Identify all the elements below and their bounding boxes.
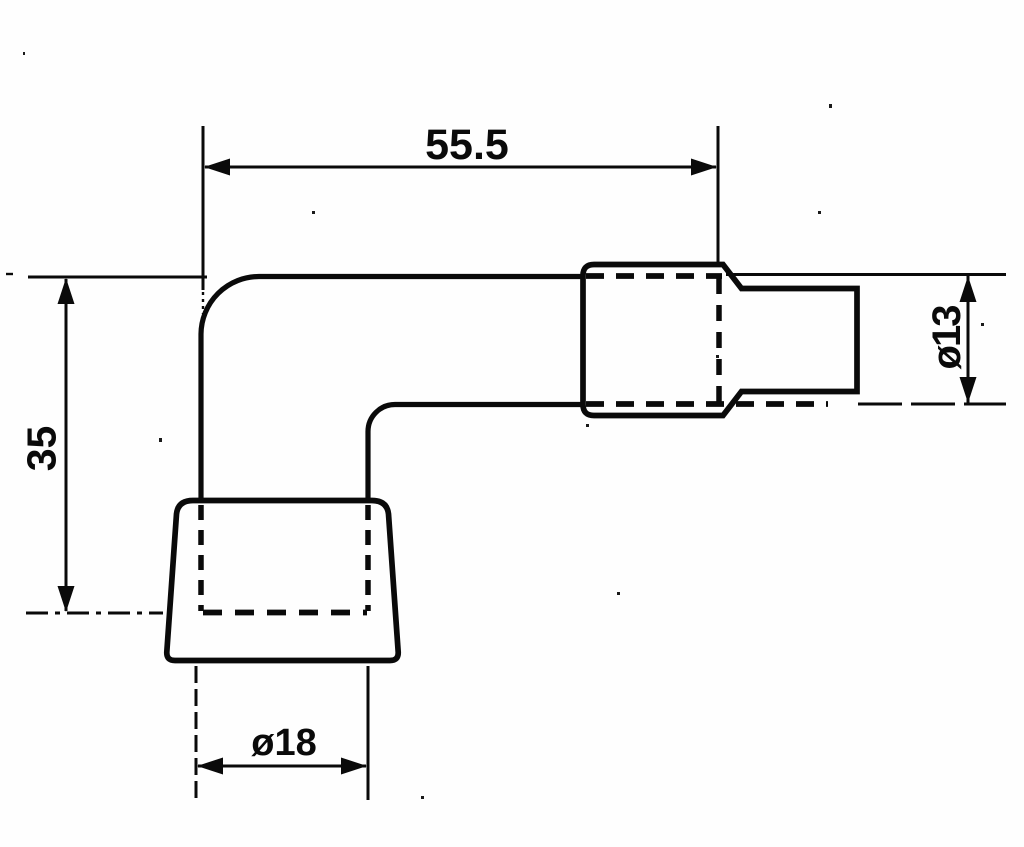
svg-text:35: 35	[19, 426, 65, 472]
svg-text:ø18: ø18	[251, 722, 316, 764]
svg-text:55.5: 55.5	[425, 121, 509, 169]
svg-text:ø13: ø13	[925, 306, 969, 370]
